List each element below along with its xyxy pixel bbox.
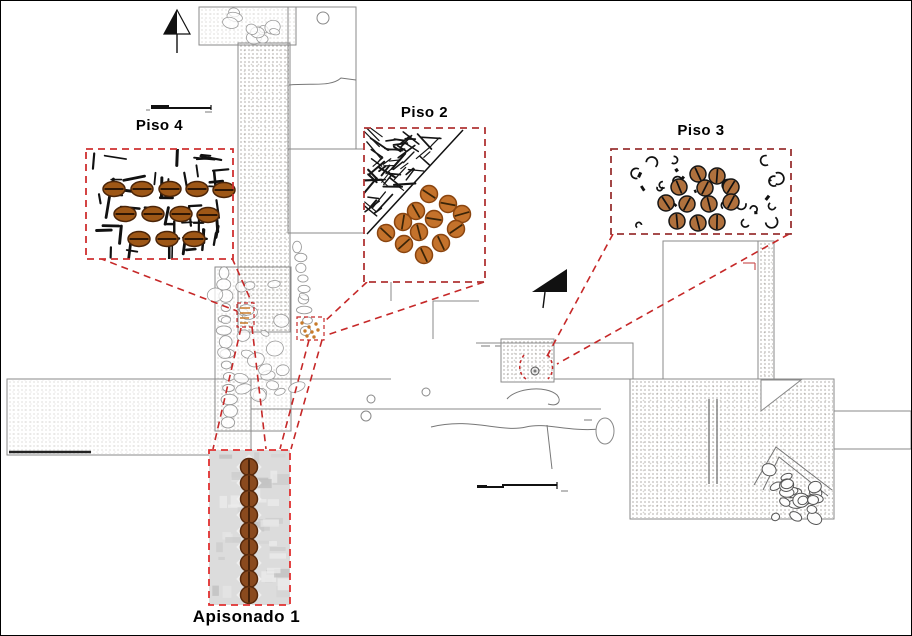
plan-svg	[1, 1, 912, 636]
inset-label-apisonado1: Apisonado 1	[179, 607, 314, 627]
scale-bar-topleft	[151, 105, 211, 110]
plan-strip-right	[758, 241, 774, 379]
inset-label-piso3: Piso 3	[611, 122, 791, 139]
target-piso3	[548, 355, 553, 379]
inset-label-piso2: Piso 2	[364, 104, 485, 121]
plan-unit-top	[288, 7, 356, 149]
north-arrow-top-icon	[164, 10, 190, 53]
inset-piso3	[611, 149, 791, 234]
inset-panels	[86, 125, 791, 608]
plan-unit-right-tall	[663, 241, 758, 379]
north-arrow-center-icon	[532, 269, 567, 308]
plan-right-arm	[834, 411, 911, 449]
plan-unit-right-center	[554, 343, 633, 379]
figure-canvas: Piso 4 Piso 2 Piso 3 Apisonado 1	[0, 0, 912, 636]
target-piso3	[520, 355, 526, 379]
inset-piso2	[360, 125, 485, 282]
inset-piso4	[86, 147, 235, 260]
inset-seeds-apisonado1	[241, 459, 258, 604]
inset-apisonado1	[209, 450, 293, 608]
inset-label-piso4: Piso 4	[86, 117, 233, 134]
scale-bar-bottom	[477, 482, 557, 489]
plan-left-arm	[7, 379, 251, 455]
plan-unit-target-piso3	[501, 339, 554, 382]
